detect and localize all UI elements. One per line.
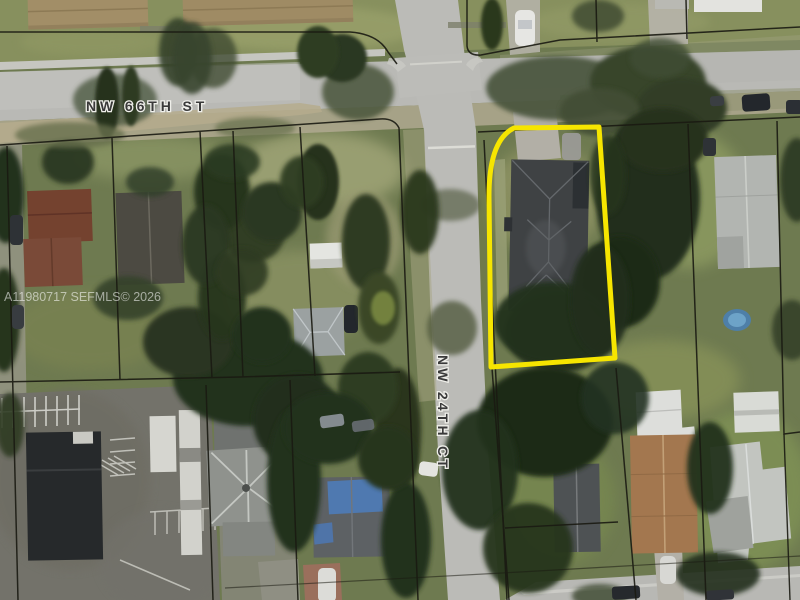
- svg-text:A11980717 SEFMLS© 2026: A11980717 SEFMLS© 2026: [4, 290, 161, 304]
- svg-text:NW 24TH CT: NW 24TH CT: [435, 355, 451, 471]
- svg-text:NW 66TH ST: NW 66TH ST: [86, 98, 208, 114]
